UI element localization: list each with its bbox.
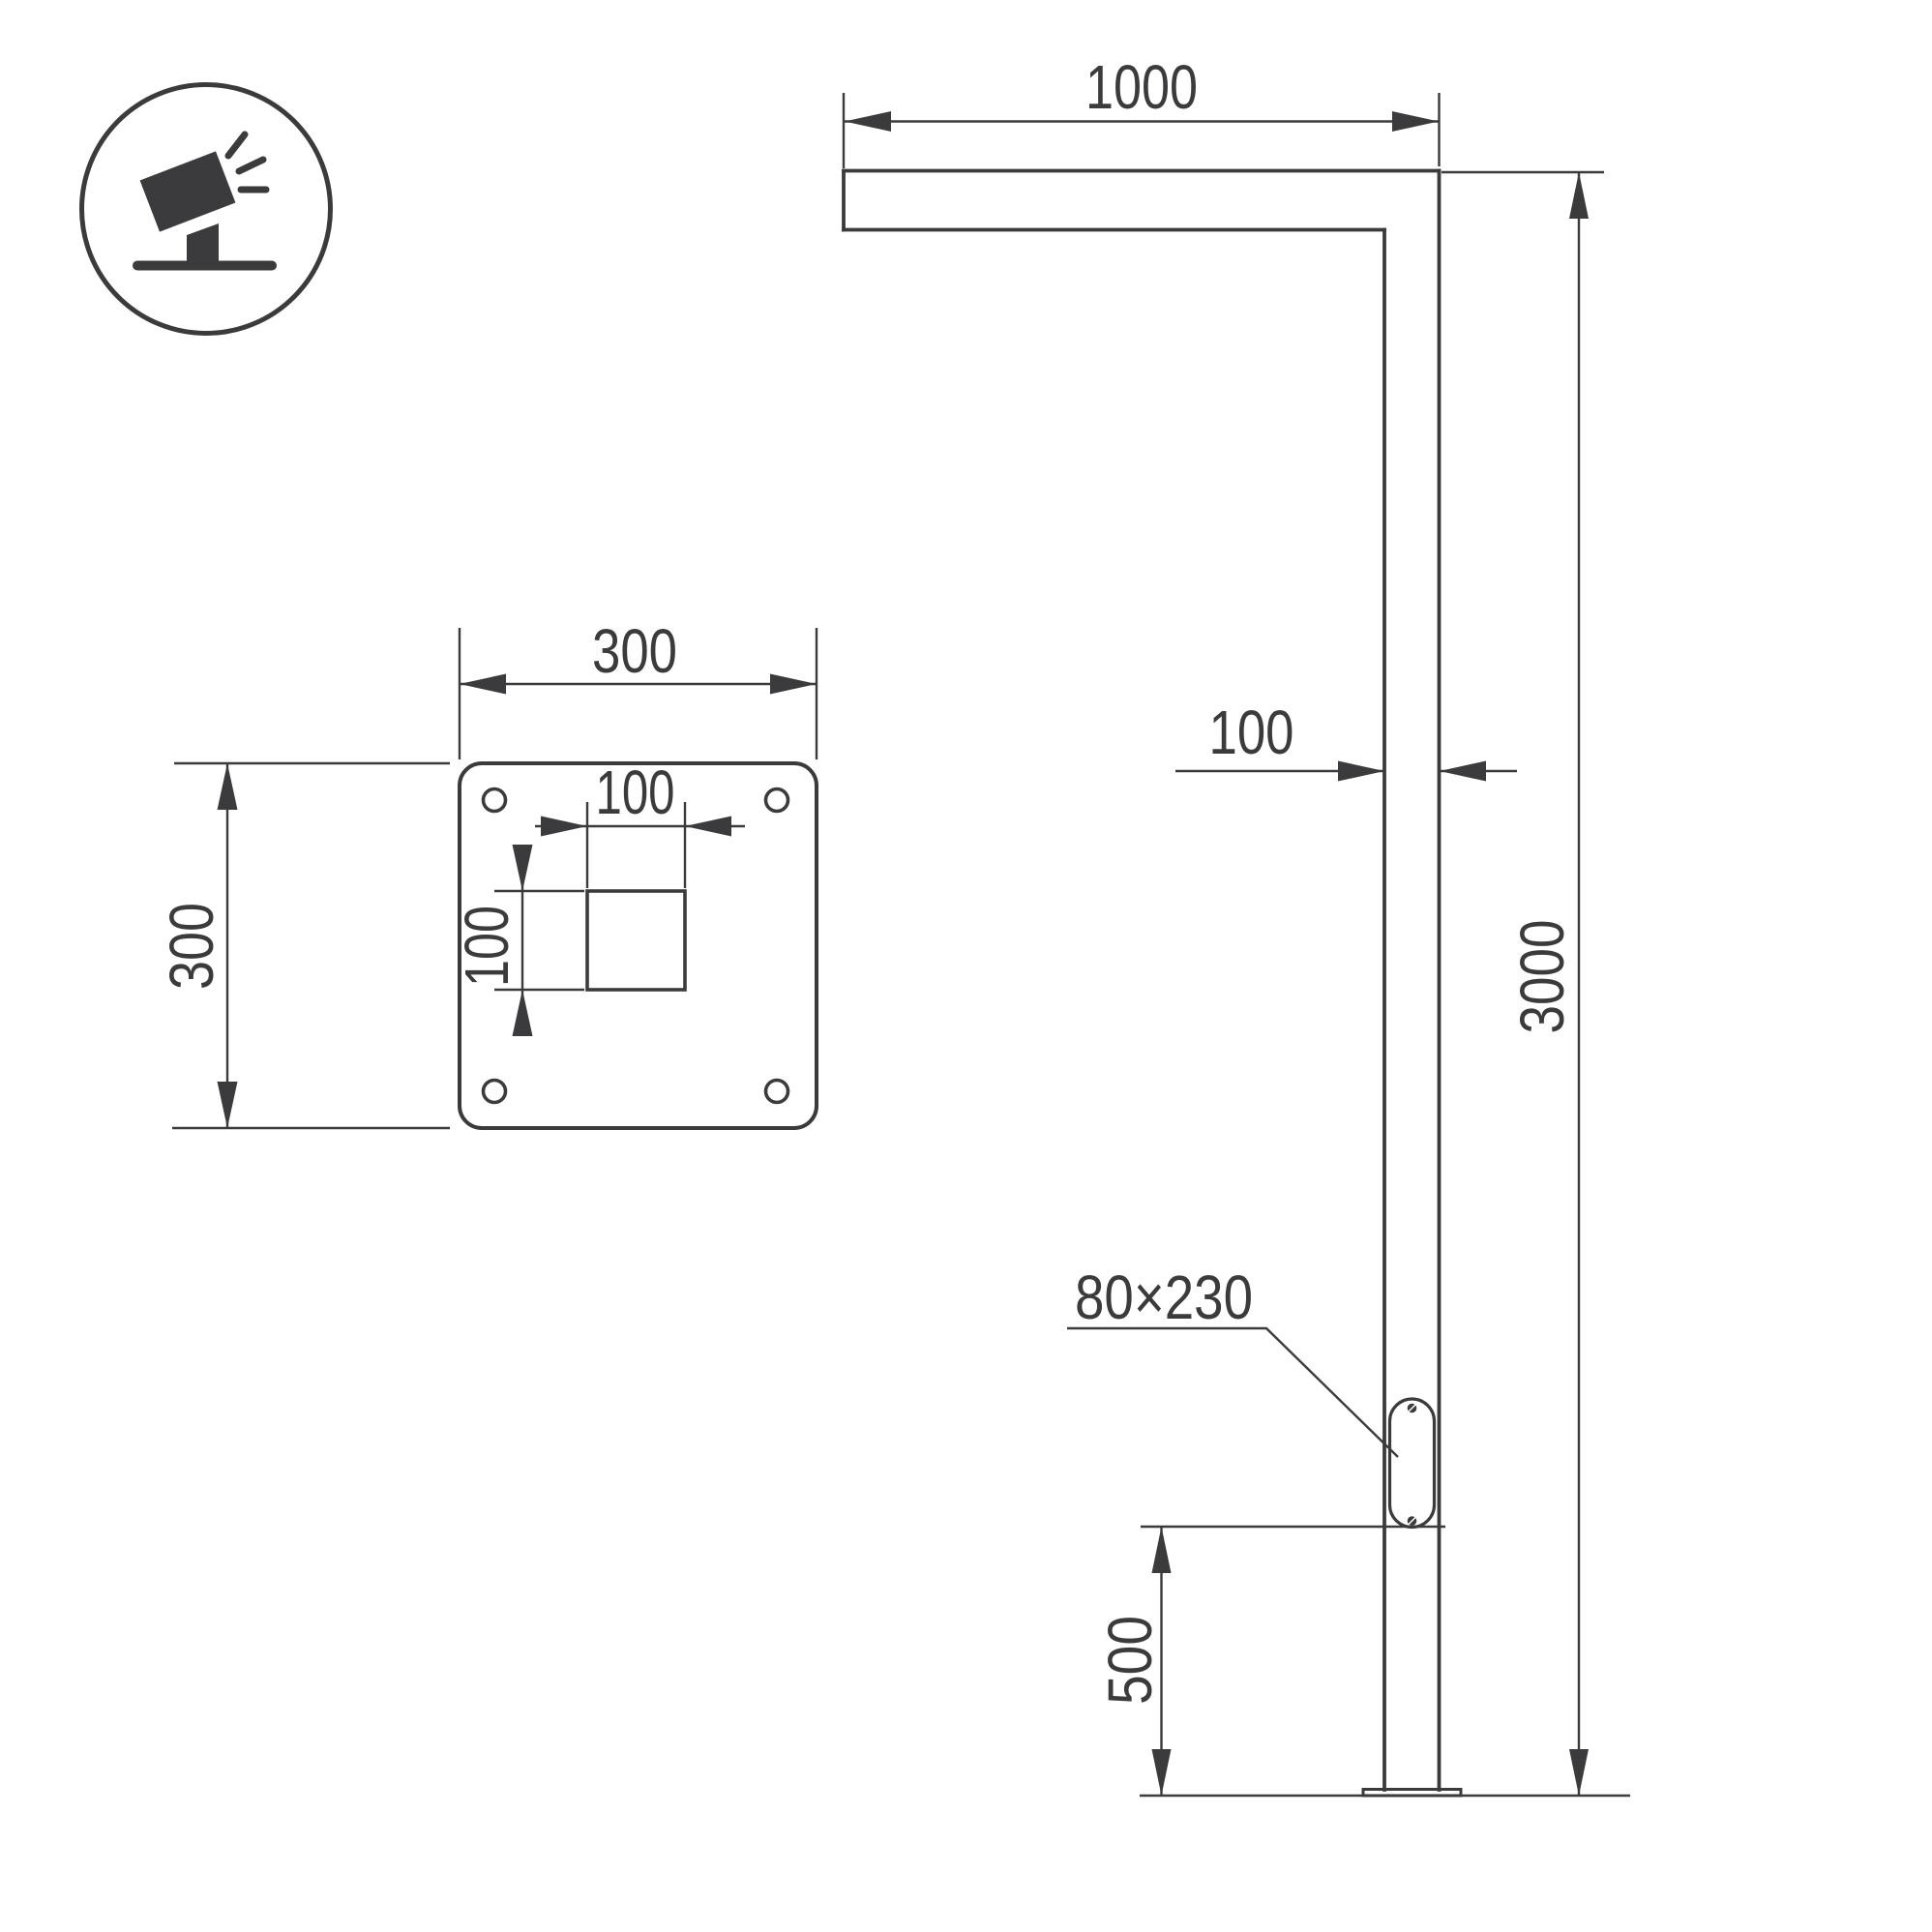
svg-text:3000: 3000	[1507, 920, 1577, 1034]
svg-text:100: 100	[596, 758, 675, 827]
svg-text:100: 100	[1209, 698, 1294, 767]
svg-text:300: 300	[592, 616, 677, 686]
svg-text:500: 500	[1095, 1616, 1165, 1705]
svg-text:1000: 1000	[1085, 52, 1198, 122]
svg-text:100: 100	[452, 906, 521, 987]
svg-text:300: 300	[157, 903, 226, 990]
svg-text:80×230: 80×230	[1075, 1263, 1253, 1332]
